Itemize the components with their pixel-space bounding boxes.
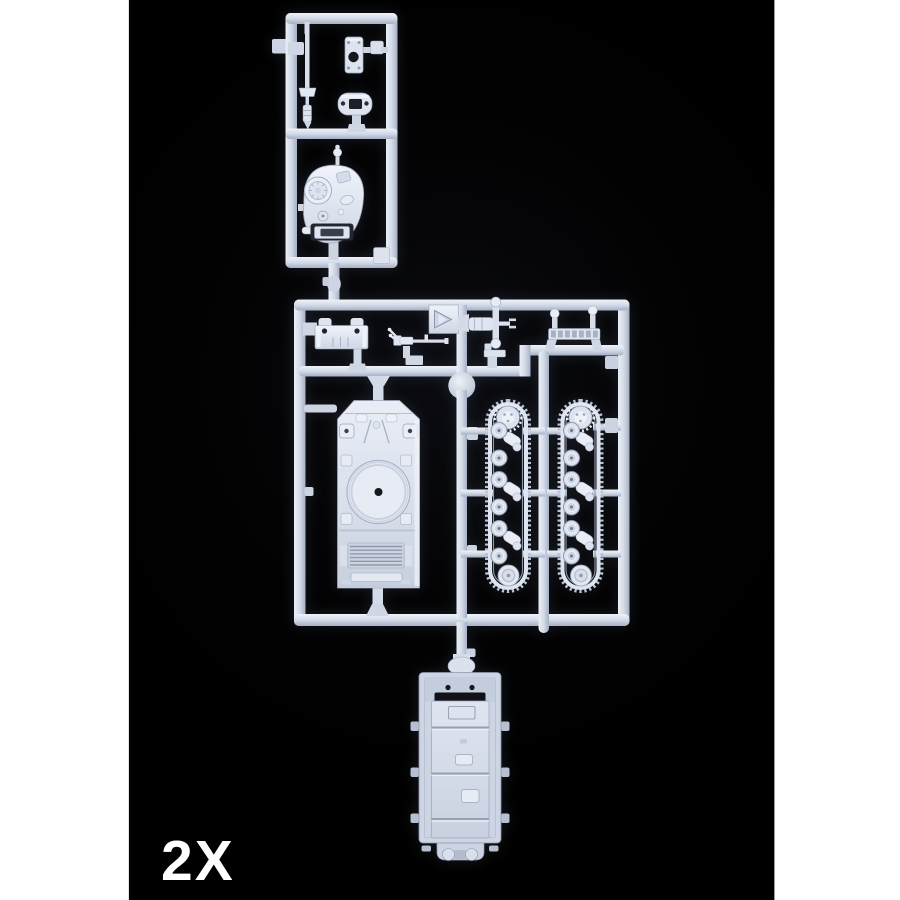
mantlet-capsule bbox=[338, 93, 372, 132]
right-track-assembly bbox=[560, 402, 601, 591]
hatch-ring-plate bbox=[345, 37, 388, 73]
left-track-assembly bbox=[488, 402, 529, 591]
outer-tab bbox=[272, 39, 288, 54]
quantity-label: 2X bbox=[161, 833, 235, 890]
corner-pad bbox=[374, 248, 390, 264]
tool-bar bbox=[545, 306, 603, 352]
triangle-hatch-plate bbox=[429, 305, 459, 334]
lower-runner bbox=[448, 622, 476, 675]
sprue-drawing bbox=[129, 0, 774, 900]
lower-hull-tub bbox=[411, 673, 510, 861]
top-sprue-frame bbox=[272, 13, 398, 305]
lifting-knob bbox=[333, 148, 341, 156]
upper-hull bbox=[304, 376, 420, 616]
turret bbox=[298, 145, 364, 260]
sprue-photo: 2X bbox=[128, 0, 775, 900]
hull-rear-plate bbox=[303, 318, 368, 371]
